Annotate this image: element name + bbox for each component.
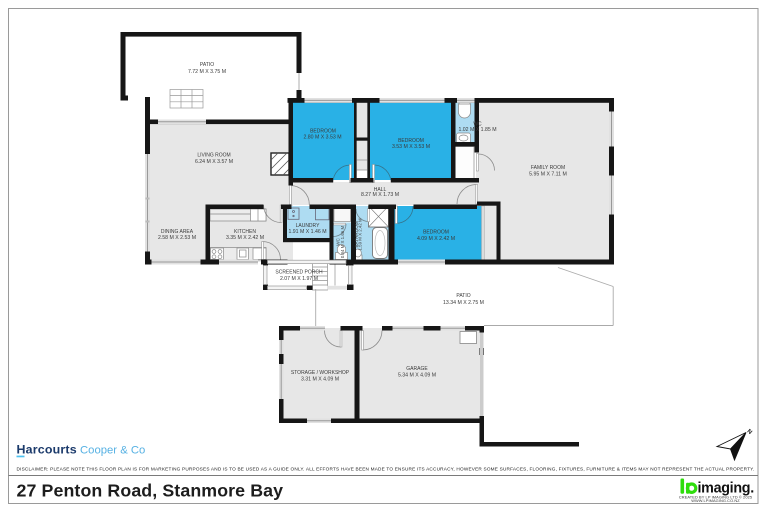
- svg-text:2.80 M X 3.53 M: 2.80 M X 3.53 M: [303, 134, 341, 140]
- svg-text:1.59 M X 2.42 M: 1.59 M X 2.42 M: [358, 218, 363, 251]
- svg-text:8.27 M X 1.73 M: 8.27 M X 1.73 M: [361, 192, 399, 198]
- svg-text:3.35 M X 2.42 M: 3.35 M X 2.42 M: [226, 235, 264, 241]
- svg-text:27 Penton Road, Stanmore Bay: 27 Penton Road, Stanmore Bay: [17, 480, 284, 500]
- svg-text:Harcourts: Harcourts: [17, 443, 77, 457]
- svg-text:1.91 M X 1.46 M: 1.91 M X 1.46 M: [288, 229, 326, 235]
- svg-text:7.72 M X 3.75 M: 7.72 M X 3.75 M: [188, 69, 226, 75]
- svg-text:SCREENED PORCH: SCREENED PORCH: [275, 269, 323, 275]
- svg-text:PATIO: PATIO: [200, 62, 214, 68]
- svg-text:3.53 M X 3.53 M: 3.53 M X 3.53 M: [392, 144, 430, 150]
- svg-text:LIVING ROOM: LIVING ROOM: [197, 153, 230, 159]
- svg-text:5.95 M X 7.11 M: 5.95 M X 7.11 M: [529, 172, 567, 178]
- svg-text:1.02 M X 1.85 M: 1.02 M X 1.85 M: [458, 127, 496, 133]
- svg-text:DISCLAIMER: PLEASE NOTE THIS F: DISCLAIMER: PLEASE NOTE THIS FLOOR PLAN …: [17, 467, 755, 472]
- svg-text:GARAGE: GARAGE: [406, 366, 428, 372]
- svg-text:PATIO: PATIO: [456, 293, 470, 299]
- svg-text:5.34 M X 4.09 M: 5.34 M X 4.09 M: [398, 372, 436, 378]
- svg-text:KITCHEN: KITCHEN: [234, 229, 256, 235]
- svg-text:2.58 M X 2.53 M: 2.58 M X 2.53 M: [158, 235, 196, 241]
- svg-text:Cooper & Co: Cooper & Co: [80, 445, 145, 457]
- svg-text:4.09 M X 2.42 M: 4.09 M X 2.42 M: [417, 236, 455, 242]
- svg-text:WWW.LPIMAGING.CO.NZ: WWW.LPIMAGING.CO.NZ: [691, 498, 740, 503]
- svg-text:N: N: [746, 429, 753, 436]
- svg-text:2.07 M X 1.97 M: 2.07 M X 1.97 M: [280, 276, 318, 282]
- svg-text:BEDROOM: BEDROOM: [423, 230, 449, 236]
- svg-text:13.34 M X 2.75 M: 13.34 M X 2.75 M: [443, 300, 484, 306]
- svg-text:0.84 M X 1.66 M: 0.84 M X 1.66 M: [340, 226, 345, 259]
- svg-text:DINING AREA: DINING AREA: [161, 229, 194, 235]
- svg-text:STORAGE / WORKSHOP: STORAGE / WORKSHOP: [291, 370, 350, 376]
- svg-text:6.24 M X 3.57 M: 6.24 M X 3.57 M: [195, 159, 233, 165]
- svg-text:3.31 M X 4.09 M: 3.31 M X 4.09 M: [301, 377, 339, 383]
- svg-text:FAMILY ROOM: FAMILY ROOM: [531, 165, 565, 171]
